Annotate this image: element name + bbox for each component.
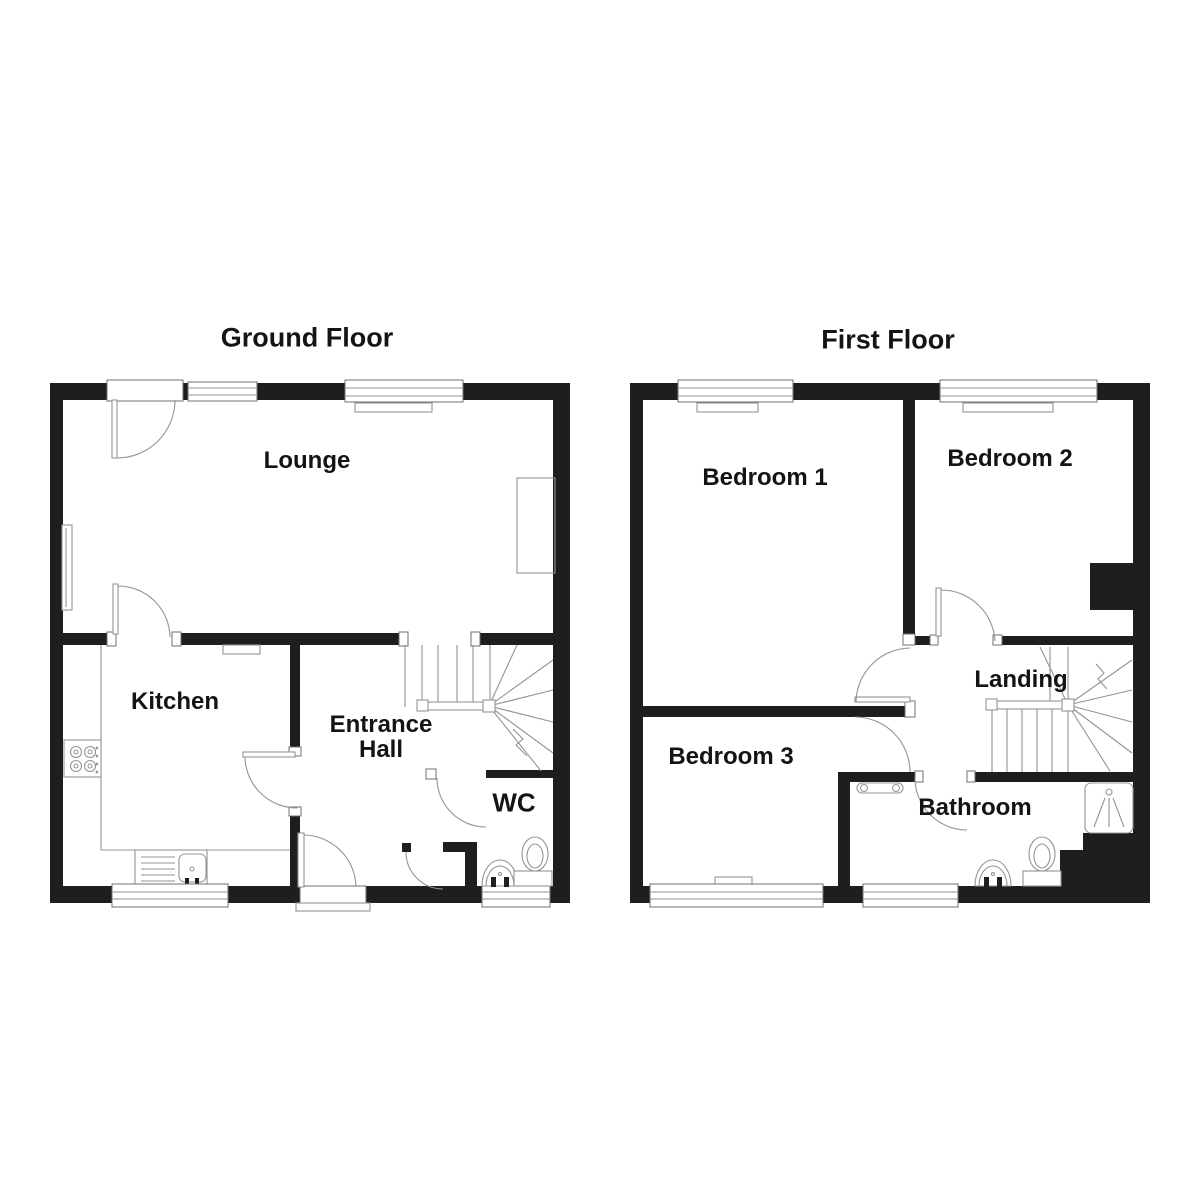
room-label-wc: WC xyxy=(492,788,535,819)
ff-chimney-breast xyxy=(1090,563,1135,610)
ff-bedroom2-door xyxy=(936,588,995,641)
gf-radiator-lounge-window xyxy=(355,403,432,412)
ff-bedroom3-door xyxy=(855,717,910,772)
gf-kitchen-hall-door xyxy=(243,747,301,816)
gf-kitchen-counter xyxy=(101,645,290,850)
gf-kitchen-window xyxy=(112,884,228,907)
gf-lounge-window-right xyxy=(345,380,463,412)
first-floor-title: First Floor xyxy=(821,325,955,356)
gf-wc-toilet xyxy=(514,837,552,886)
ff-radiator-bedroom1 xyxy=(697,403,758,412)
ground-floor-title: Ground Floor xyxy=(221,323,393,354)
gf-wc-door xyxy=(426,769,486,827)
ff-bathroom-toilet xyxy=(1023,837,1061,886)
gf-garden-door xyxy=(107,380,183,458)
room-label-bedroom-1: Bedroom 1 xyxy=(702,464,827,492)
ff-towel-rail xyxy=(857,783,903,793)
room-label-bedroom-2: Bedroom 2 xyxy=(947,445,1072,473)
ff-bedroom2-window xyxy=(940,380,1097,412)
ff-shower xyxy=(1085,783,1133,833)
ff-radiator-bedroom2 xyxy=(963,403,1053,412)
ff-bedroom3-window xyxy=(650,877,823,907)
ff-bedroom1-window xyxy=(678,380,793,412)
gf-cupboard-door xyxy=(406,852,443,889)
gf-lounge-hall-opening xyxy=(399,632,480,646)
ff-bathroom-basin xyxy=(975,860,1011,887)
gf-radiator-kitchen xyxy=(223,645,260,654)
room-label-kitchen: Kitchen xyxy=(131,688,219,716)
gf-hob xyxy=(64,740,101,777)
gf-sofa xyxy=(517,478,555,573)
room-label-lounge: Lounge xyxy=(264,447,351,475)
gf-radiator-lounge-left-wall xyxy=(62,525,72,610)
ff-bedroom1-door xyxy=(855,648,910,702)
room-label-landing: Landing xyxy=(974,666,1067,694)
room-label-bathroom: Bathroom xyxy=(918,794,1031,822)
room-label-entrance-hall: Entrance Hall xyxy=(316,712,446,762)
gf-kitchen-door xyxy=(107,584,181,646)
gf-front-door xyxy=(296,833,370,911)
floorplan-drawing xyxy=(0,0,1200,1200)
gf-wc-window xyxy=(482,884,550,907)
gf-lounge-window-left xyxy=(188,382,257,401)
ff-bathroom-window xyxy=(863,884,958,907)
floorplan-page: Ground Floor First Floor Lounge Kitchen … xyxy=(0,0,1200,1200)
room-label-bedroom-3: Bedroom 3 xyxy=(668,743,793,771)
gf-sink-unit xyxy=(135,850,207,887)
gf-wc-basin xyxy=(482,860,518,887)
